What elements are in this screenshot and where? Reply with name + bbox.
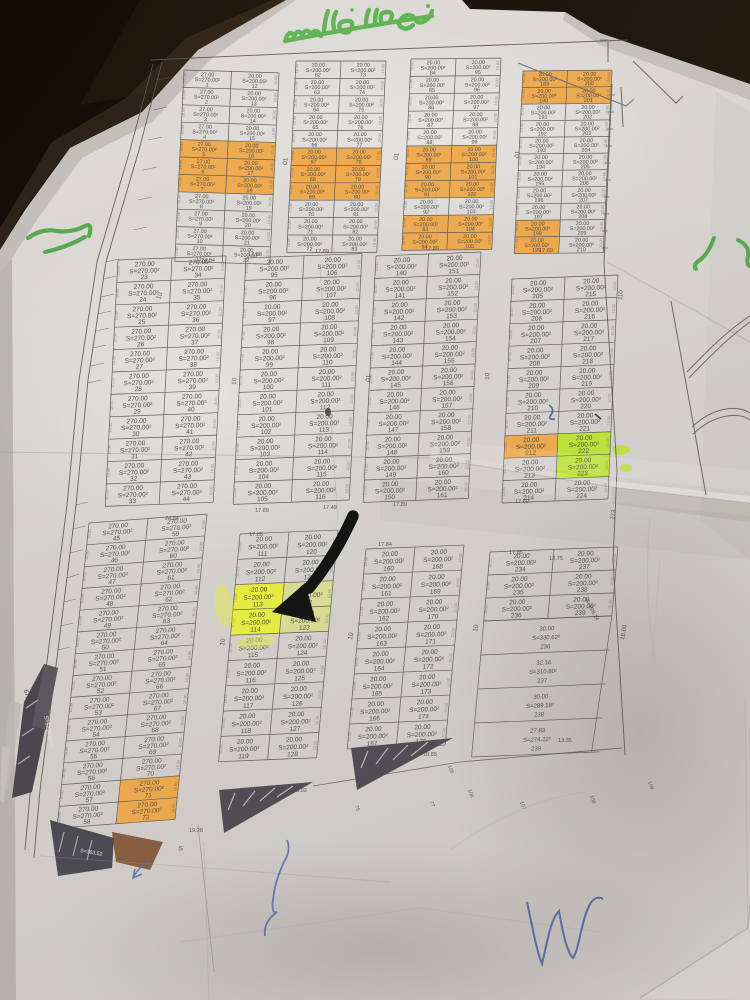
svg-text:174: 174 (418, 713, 430, 720)
svg-text:29: 29 (133, 408, 141, 415)
svg-text:10.00: 10.00 (515, 222, 519, 232)
svg-text:207: 207 (530, 338, 542, 345)
svg-text:65: 65 (158, 661, 166, 669)
svg-text:S=310.80²: S=310.80² (529, 669, 557, 676)
svg-text:20.00: 20.00 (365, 726, 382, 734)
svg-text:10.00: 10.00 (288, 203, 292, 213)
svg-text:10.00: 10.00 (221, 262, 225, 272)
svg-text:116: 116 (245, 677, 256, 684)
svg-text:119: 119 (238, 753, 249, 760)
svg-text:10.00: 10.00 (345, 484, 349, 494)
svg-text:118: 118 (240, 728, 251, 735)
svg-text:10.00: 10.00 (368, 396, 372, 406)
svg-text:236: 236 (510, 612, 522, 619)
svg-text:66: 66 (156, 683, 164, 691)
svg-text:10.00: 10.00 (468, 415, 472, 425)
svg-text:10.00: 10.00 (273, 93, 277, 103)
svg-text:215: 215 (585, 291, 597, 298)
svg-text:10.00: 10.00 (376, 168, 380, 178)
svg-text:20.00: 20.00 (239, 713, 256, 721)
svg-text:145: 145 (390, 382, 402, 389)
svg-text:55: 55 (90, 753, 98, 761)
svg-text:189: 189 (540, 82, 549, 88)
svg-text:32.16: 32.16 (536, 660, 552, 667)
svg-text:82: 82 (352, 229, 358, 235)
svg-text:151: 151 (448, 268, 460, 275)
svg-text:102: 102 (467, 192, 476, 198)
svg-text:86: 86 (428, 105, 434, 111)
svg-text:10.00: 10.00 (113, 333, 117, 343)
svg-text:10.00: 10.00 (293, 98, 297, 108)
svg-text:99: 99 (266, 362, 274, 369)
svg-text:10.00: 10.00 (606, 89, 610, 99)
svg-text:142: 142 (393, 315, 405, 322)
svg-text:13.75: 13.75 (549, 556, 563, 562)
svg-text:12: 12 (251, 84, 257, 90)
svg-text:10.00: 10.00 (406, 149, 410, 159)
svg-text:20.00: 20.00 (370, 676, 387, 684)
svg-text:1: 1 (205, 82, 208, 88)
svg-text:160: 160 (383, 565, 395, 572)
svg-text:10.00: 10.00 (289, 185, 293, 195)
svg-text:10.00: 10.00 (351, 372, 355, 382)
svg-text:209: 209 (577, 231, 586, 237)
svg-text:10.00: 10.00 (599, 238, 603, 248)
svg-text:67: 67 (310, 160, 316, 166)
svg-text:197: 197 (534, 214, 543, 220)
svg-text:10.00: 10.00 (268, 197, 272, 207)
svg-text:237: 237 (579, 564, 591, 571)
svg-text:10.00: 10.00 (409, 79, 413, 89)
svg-text:72: 72 (306, 247, 312, 253)
svg-text:140: 140 (396, 270, 408, 277)
svg-text:149: 149 (385, 472, 397, 479)
svg-text:19.28: 19.28 (189, 828, 203, 834)
svg-text:218: 218 (582, 358, 594, 365)
svg-text:163: 163 (376, 640, 388, 647)
svg-text:10.00: 10.00 (109, 423, 113, 433)
svg-text:39: 39 (188, 384, 196, 391)
svg-text:20.00: 20.00 (419, 674, 436, 682)
svg-text:10.00: 10.00 (521, 90, 525, 100)
svg-text:10.00: 10.00 (272, 110, 276, 120)
svg-text:10.00: 10.00 (245, 264, 249, 274)
svg-text:10.00: 10.00 (269, 180, 273, 190)
svg-text:10: 10 (484, 372, 492, 380)
svg-text:24: 24 (139, 296, 147, 303)
svg-text:10.00: 10.00 (271, 128, 275, 138)
svg-text:10.00: 10.00 (509, 330, 513, 340)
svg-text:10.00: 10.00 (291, 151, 295, 161)
svg-text:10.00: 10.00 (380, 81, 384, 91)
svg-text:202: 202 (583, 114, 592, 120)
svg-text:10.00: 10.00 (519, 139, 523, 149)
svg-text:17.49: 17.49 (323, 505, 337, 511)
svg-text:10.00: 10.00 (365, 441, 369, 451)
svg-text:10.00: 10.00 (491, 165, 495, 175)
svg-text:10.00: 10.00 (346, 461, 350, 471)
svg-text:89: 89 (425, 157, 431, 163)
svg-text:17.85: 17.85 (249, 532, 263, 538)
svg-text:108: 108 (324, 314, 336, 321)
svg-text:141: 141 (394, 292, 406, 299)
svg-text:79: 79 (355, 177, 361, 183)
svg-text:20.00: 20.00 (421, 649, 438, 657)
svg-text:238: 238 (576, 587, 588, 594)
svg-text:10.00: 10.00 (178, 177, 182, 187)
svg-text:101: 101 (261, 406, 273, 413)
svg-text:91: 91 (424, 192, 430, 198)
svg-text:105: 105 (465, 244, 474, 250)
svg-text:204: 204 (581, 148, 590, 154)
svg-text:20.00: 20.00 (374, 626, 391, 634)
svg-text:101: 101 (468, 174, 477, 180)
svg-text:99: 99 (471, 140, 477, 146)
svg-text:15: 15 (249, 136, 255, 142)
svg-text:10.00: 10.00 (520, 123, 524, 133)
svg-text:194: 194 (536, 165, 545, 171)
svg-text:10.00: 10.00 (233, 488, 237, 498)
svg-text:83: 83 (351, 247, 357, 253)
svg-text:81: 81 (353, 212, 359, 218)
svg-text:01: 01 (282, 157, 290, 165)
svg-text:238: 238 (534, 712, 545, 718)
svg-text:161: 161 (380, 590, 392, 597)
svg-text:62: 62 (315, 73, 321, 79)
svg-text:10.00: 10.00 (472, 325, 476, 335)
svg-text:10.00: 10.00 (407, 131, 411, 141)
svg-text:210: 210 (527, 405, 539, 412)
svg-text:10.00: 10.00 (213, 419, 217, 429)
svg-text:10.00: 10.00 (220, 285, 224, 295)
svg-text:70: 70 (308, 212, 314, 218)
svg-text:43: 43 (184, 474, 192, 481)
svg-text:69: 69 (309, 195, 315, 201)
svg-text:154: 154 (445, 335, 457, 342)
svg-text:10.00: 10.00 (608, 600, 613, 610)
svg-text:10: 10 (196, 239, 202, 245)
svg-text:10.00: 10.00 (608, 393, 612, 403)
svg-text:92: 92 (423, 210, 429, 216)
svg-text:68: 68 (310, 177, 316, 183)
svg-text:191: 191 (538, 115, 547, 121)
svg-text:23: 23 (140, 274, 148, 281)
svg-text:61: 61 (167, 574, 175, 582)
svg-text:103: 103 (259, 451, 271, 458)
svg-text:24.84: 24.84 (165, 516, 179, 522)
svg-text:40: 40 (187, 406, 195, 413)
svg-text:105: 105 (257, 496, 269, 503)
svg-text:10.00: 10.00 (217, 329, 221, 339)
svg-text:234: 234 (515, 566, 527, 573)
svg-text:20.00: 20.00 (251, 586, 268, 594)
svg-text:10.00: 10.00 (605, 122, 609, 132)
svg-text:10.00: 10.00 (177, 194, 181, 204)
svg-text:26: 26 (137, 341, 145, 348)
svg-text:170: 170 (427, 613, 439, 620)
svg-text:10.00: 10.00 (374, 203, 378, 213)
svg-text:10.00: 10.00 (601, 188, 605, 198)
svg-text:20.00: 20.00 (377, 601, 394, 609)
svg-text:53: 53 (94, 710, 102, 718)
svg-text:10.00: 10.00 (237, 421, 241, 431)
svg-text:10.00: 10.00 (488, 558, 493, 568)
svg-text:10.00: 10.00 (489, 200, 493, 210)
svg-text:63: 63 (162, 618, 170, 626)
svg-text:114: 114 (250, 627, 261, 634)
svg-text:10.00: 10.00 (354, 305, 358, 315)
svg-text:10.00: 10.00 (381, 64, 385, 74)
svg-text:209: 209 (528, 383, 540, 390)
svg-text:147: 147 (387, 427, 399, 434)
svg-text:65: 65 (312, 125, 318, 131)
svg-text:20.00: 20.00 (414, 724, 431, 732)
svg-text:10.00: 10.00 (114, 311, 118, 321)
svg-text:198: 198 (533, 231, 542, 237)
svg-text:10.00: 10.00 (520, 106, 524, 116)
svg-text:193: 193 (537, 148, 546, 154)
svg-text:190: 190 (539, 98, 548, 104)
svg-text:10.00: 10.00 (407, 114, 411, 124)
svg-text:10.00: 10.00 (350, 394, 354, 404)
svg-text:10.00: 10.00 (613, 281, 617, 291)
svg-text:10.00: 10.00 (373, 220, 377, 230)
svg-text:10.00: 10.00 (209, 486, 213, 496)
svg-text:10.00: 10.00 (517, 173, 521, 183)
svg-text:102: 102 (260, 429, 272, 436)
svg-text:10.00: 10.00 (522, 73, 526, 83)
svg-text:30.00: 30.00 (539, 626, 555, 633)
svg-text:10.00: 10.00 (493, 130, 497, 140)
svg-text:17.89: 17.89 (315, 249, 329, 255)
svg-text:10.00: 10.00 (266, 232, 270, 242)
svg-text:155: 155 (444, 358, 456, 365)
svg-text:33: 33 (129, 498, 137, 505)
svg-text:38: 38 (190, 362, 198, 369)
svg-text:168: 168 (432, 563, 444, 570)
svg-text:100: 100 (469, 157, 478, 163)
svg-text:62: 62 (165, 596, 173, 604)
svg-text:46: 46 (110, 557, 118, 565)
svg-text:10.00: 10.00 (356, 282, 360, 292)
svg-text:10.00: 10.00 (179, 160, 183, 170)
svg-text:124: 124 (296, 650, 308, 657)
svg-text:100: 100 (263, 384, 275, 391)
svg-text:17.85: 17.85 (509, 550, 523, 556)
svg-text:20.00: 20.00 (372, 651, 389, 659)
svg-text:164: 164 (373, 665, 385, 672)
svg-text:6: 6 (201, 169, 204, 175)
svg-text:57: 57 (85, 797, 93, 805)
svg-text:13: 13 (251, 101, 257, 107)
svg-text:236: 236 (540, 644, 551, 650)
svg-text:10.00: 10.00 (402, 218, 406, 228)
svg-text:4: 4 (203, 135, 206, 141)
svg-text:239: 239 (531, 746, 542, 752)
svg-text:20.00: 20.00 (236, 738, 253, 746)
svg-text:01: 01 (365, 374, 373, 382)
svg-text:10.00: 10.00 (357, 260, 361, 270)
svg-text:10.00: 10.00 (267, 215, 271, 225)
svg-text:10.00: 10.00 (469, 393, 473, 403)
svg-text:113: 113 (252, 601, 263, 608)
svg-text:10.00: 10.00 (292, 133, 296, 143)
svg-text:10.00: 10.00 (290, 168, 294, 178)
svg-text:10.00: 10.00 (505, 419, 509, 429)
svg-text:10.00: 10.00 (176, 212, 180, 222)
svg-text:76: 76 (357, 125, 363, 131)
svg-text:20.00: 20.00 (241, 688, 258, 696)
svg-text:58: 58 (83, 819, 91, 827)
svg-text:216: 216 (584, 313, 596, 320)
svg-text:5: 5 (202, 152, 205, 158)
svg-text:10.00: 10.00 (473, 303, 477, 313)
svg-text:10.00: 10.00 (488, 235, 492, 245)
svg-text:96: 96 (474, 87, 480, 93)
svg-text:20.00: 20.00 (428, 574, 445, 582)
svg-text:20.00: 20.00 (379, 576, 396, 584)
svg-text:10.00: 10.00 (506, 397, 510, 407)
svg-text:10.00: 10.00 (240, 354, 244, 364)
svg-text:10.00: 10.00 (600, 222, 604, 232)
svg-text:10.00: 10.00 (235, 443, 239, 453)
svg-text:10.00: 10.00 (370, 352, 374, 362)
svg-text:10.00: 10.00 (112, 356, 116, 366)
svg-text:36: 36 (192, 317, 200, 324)
svg-text:47: 47 (108, 579, 116, 587)
svg-text:17.89: 17.89 (425, 246, 439, 252)
svg-text:10.00: 10.00 (607, 72, 611, 82)
svg-text:10.00: 10.00 (270, 162, 274, 172)
svg-text:110: 110 (322, 359, 333, 366)
svg-text:115: 115 (247, 652, 258, 659)
svg-text:10.00: 10.00 (106, 468, 110, 478)
svg-text:20.00: 20.00 (293, 660, 310, 668)
svg-text:10.00: 10.00 (364, 464, 368, 474)
svg-text:153: 153 (446, 313, 458, 320)
svg-text:158: 158 (440, 425, 452, 432)
svg-text:10.00: 10.00 (294, 81, 298, 91)
svg-text:10: 10 (231, 377, 239, 385)
svg-text:10.00: 10.00 (367, 419, 371, 429)
svg-text:67: 67 (153, 705, 161, 713)
svg-text:20.00: 20.00 (288, 711, 305, 719)
svg-text:10.00: 10.00 (274, 75, 278, 85)
svg-text:20.00: 20.00 (367, 701, 384, 709)
svg-text:10.00: 10.00 (352, 349, 356, 359)
svg-text:115: 115 (316, 471, 327, 478)
svg-text:162: 162 (378, 615, 390, 622)
svg-text:10.00: 10.00 (496, 61, 500, 71)
svg-text:10.00: 10.00 (405, 166, 409, 176)
svg-text:51: 51 (99, 666, 107, 674)
svg-text:69: 69 (149, 749, 157, 757)
svg-text:239: 239 (574, 610, 586, 617)
svg-text:3: 3 (204, 117, 207, 123)
svg-text:10.00: 10.00 (347, 439, 351, 449)
svg-text:98: 98 (472, 122, 478, 128)
svg-text:10.00: 10.00 (292, 116, 296, 126)
svg-text:205: 205 (532, 293, 544, 300)
svg-text:10.00: 10.00 (378, 116, 382, 126)
svg-text:165: 165 (371, 690, 383, 697)
svg-text:20.00: 20.00 (285, 736, 302, 744)
svg-text:10.00: 10.00 (117, 266, 121, 276)
svg-text:237: 237 (537, 678, 548, 684)
svg-text:20.00: 20.00 (290, 686, 307, 694)
svg-text:20.00: 20.00 (430, 549, 447, 557)
svg-text:10.00: 10.00 (234, 466, 238, 476)
svg-text:19: 19 (246, 206, 252, 212)
svg-text:10.00: 10.00 (295, 64, 299, 74)
svg-text:10.00: 10.00 (180, 142, 184, 152)
svg-text:10.00: 10.00 (495, 78, 499, 88)
svg-text:169: 169 (429, 588, 441, 595)
svg-text:160: 160 (438, 470, 450, 477)
svg-text:44: 44 (183, 496, 191, 503)
svg-text:18: 18 (246, 188, 252, 194)
svg-text:10.00: 10.00 (271, 145, 275, 155)
svg-text:211: 211 (526, 427, 537, 434)
svg-text:104: 104 (258, 473, 270, 480)
svg-text:10.00: 10.00 (214, 397, 218, 407)
svg-text:10.00: 10.00 (238, 398, 242, 408)
svg-text:10.00: 10.00 (111, 378, 115, 388)
svg-text:200: 200 (584, 81, 593, 87)
svg-text:172: 172 (422, 663, 434, 670)
svg-text:10.00: 10.00 (244, 286, 248, 296)
svg-text:10.00: 10.00 (607, 416, 611, 426)
svg-text:10.00: 10.00 (378, 133, 382, 143)
svg-text:207: 207 (579, 197, 588, 203)
svg-text:10.00: 10.00 (105, 490, 109, 500)
svg-text:24.84: 24.84 (201, 258, 215, 264)
svg-text:64: 64 (160, 640, 168, 648)
svg-text:10.00: 10.00 (353, 327, 357, 337)
svg-text:113: 113 (319, 426, 330, 433)
svg-text:208: 208 (529, 360, 541, 367)
svg-text:10.00: 10.00 (375, 185, 379, 195)
svg-text:74: 74 (359, 90, 365, 96)
svg-text:143: 143 (392, 337, 404, 344)
svg-text:97: 97 (268, 317, 276, 324)
svg-text:9: 9 (199, 222, 202, 228)
svg-text:20.00: 20.00 (304, 534, 321, 542)
svg-text:01: 01 (393, 152, 401, 160)
svg-text:10.00: 10.00 (612, 304, 616, 314)
svg-text:205: 205 (581, 164, 590, 170)
svg-text:10.00: 10.00 (210, 464, 214, 474)
svg-text:10.00: 10.00 (211, 441, 215, 451)
svg-text:56: 56 (87, 775, 95, 783)
svg-text:146: 146 (389, 404, 401, 411)
svg-text:13.35: 13.35 (558, 738, 572, 744)
svg-text:10.00: 10.00 (242, 309, 246, 319)
svg-text:152: 152 (447, 290, 459, 297)
svg-text:10.00: 10.00 (374, 284, 378, 294)
svg-text:219: 219 (581, 381, 593, 388)
svg-text:10.00: 10.00 (110, 400, 114, 410)
svg-text:10.00: 10.00 (514, 239, 518, 249)
svg-text:70: 70 (146, 770, 154, 778)
svg-text:103: 103 (466, 209, 475, 215)
svg-text:S=289.18²: S=289.18² (526, 703, 554, 710)
svg-text:111: 111 (321, 382, 332, 389)
svg-text:10.00: 10.00 (373, 238, 377, 248)
svg-text:41: 41 (186, 429, 194, 436)
svg-text:37: 37 (191, 339, 199, 346)
svg-text:95: 95 (475, 70, 481, 76)
